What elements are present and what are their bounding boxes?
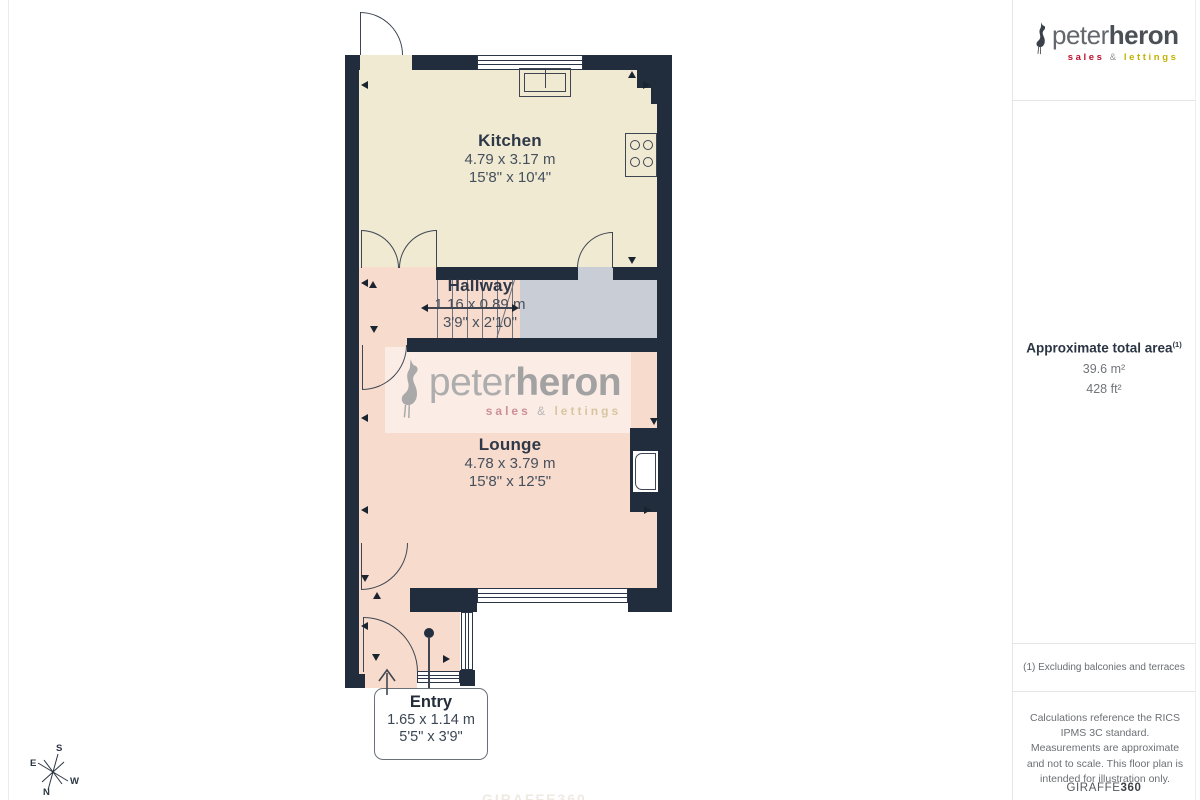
total-area-ft2: 428 ft² xyxy=(1013,382,1195,396)
lounge-watermark: peterheron sales & lettings xyxy=(385,347,631,433)
logo-tagline: sales & lettings xyxy=(1052,52,1179,63)
measure-marker xyxy=(361,81,368,89)
sidebar: peterheron sales & lettings Approximate … xyxy=(1012,0,1196,800)
kitchen-exterior-door xyxy=(360,12,403,55)
measure-marker xyxy=(628,257,636,264)
compass-east: E xyxy=(30,758,36,769)
hob-burner xyxy=(643,157,653,167)
measure-marker xyxy=(372,654,380,661)
callout-line xyxy=(428,637,430,688)
measure-marker xyxy=(361,414,368,422)
hallway-dim-arrowhead-left xyxy=(421,304,428,312)
total-area-title-text: Approximate total area xyxy=(1026,341,1172,356)
hallway-dim-arrowhead-right xyxy=(512,304,519,312)
measure-marker xyxy=(644,506,651,514)
kitchen-door-threshold xyxy=(360,55,412,70)
total-area-block: Approximate total area(1) 39.6 m² 428 ft… xyxy=(1013,340,1195,396)
logo-amp: & xyxy=(1110,52,1119,63)
measure-marker xyxy=(361,575,369,582)
sink-tap xyxy=(545,70,546,88)
heron-logo-icon xyxy=(1033,22,1049,56)
logo-heron: heron xyxy=(1109,20,1179,50)
lounge-label: Lounge 4.78 x 3.79 m 15'8" x 12'5" xyxy=(410,435,610,490)
brand-giraffe: GIRAFFE xyxy=(1066,782,1120,794)
sidebar-divider xyxy=(1013,100,1195,101)
measure-marker xyxy=(361,279,368,287)
footnote-block: (1) Excluding balconies and terraces xyxy=(1013,643,1195,692)
wall-entry-right xyxy=(460,670,475,686)
wall-kitchen-hallway xyxy=(613,267,672,280)
lounge-window-reveal xyxy=(477,603,628,612)
room-name: Kitchen xyxy=(410,131,610,151)
landing-door-threshold xyxy=(578,267,613,280)
giraffe360-brand: GIRAFFE360 xyxy=(1013,782,1195,794)
watermark-peter: peter xyxy=(429,361,515,404)
wall xyxy=(583,55,672,70)
wall-entry-bottom xyxy=(345,674,365,688)
watermark-lettings: lettings xyxy=(554,404,621,418)
hob-burner xyxy=(630,157,640,167)
kitchen-label: Kitchen 4.79 x 3.17 m 15'8" x 10'4" xyxy=(410,131,610,186)
total-area-m2: 39.6 m² xyxy=(1013,362,1195,376)
room-imperial: 15'8" x 10'4" xyxy=(410,169,610,187)
entry-side-window xyxy=(461,612,473,670)
measure-marker xyxy=(369,281,377,288)
total-area-title: Approximate total area(1) xyxy=(1013,340,1195,356)
room-name: Lounge xyxy=(410,435,610,455)
wall-hallway-lounge xyxy=(407,338,672,352)
floor-plan: peterheron sales & lettings xyxy=(0,0,1012,800)
agency-logo: peterheron sales & lettings xyxy=(1033,20,1179,63)
wall-lounge-bottom xyxy=(628,588,672,612)
room-imperial: 15'8" x 12'5" xyxy=(410,473,610,491)
room-metric: 4.79 x 3.17 m xyxy=(410,151,610,169)
entry-bottom-window xyxy=(417,671,460,683)
room-imperial: 5'5" x 3'9" xyxy=(375,729,487,746)
wall xyxy=(412,55,477,70)
watermark-heron: heron xyxy=(515,361,621,404)
logo-peter: peter xyxy=(1052,20,1109,50)
hallway-label: Hallway 1.16 x 0.89 m 3'9" x 2'10" xyxy=(390,276,570,331)
compass-rose: S E W N xyxy=(18,733,90,799)
room-name: Hallway xyxy=(390,276,570,296)
hob xyxy=(625,133,657,177)
fireplace-inset xyxy=(635,453,656,490)
room-imperial: 3'9" x 2'10" xyxy=(390,314,570,332)
measure-marker xyxy=(373,592,381,599)
room-metric: 4.78 x 3.79 m xyxy=(410,455,610,473)
entry-callout: Entry 1.65 x 1.14 m 5'5" x 3'9" xyxy=(374,688,488,760)
floorplan-page: peterheron sales & lettings xyxy=(0,0,1200,800)
measure-marker xyxy=(643,81,650,89)
footnote-text: (1) Excluding balconies and terraces xyxy=(1023,662,1185,673)
faint-bottom-watermark: GIRAFFE360 xyxy=(482,791,587,800)
measure-marker xyxy=(443,655,450,663)
measure-marker xyxy=(650,418,658,425)
measure-marker xyxy=(361,506,368,514)
wall-step xyxy=(651,88,672,104)
brand-360: 360 xyxy=(1121,782,1142,794)
measure-marker xyxy=(628,71,636,78)
logo-lettings: lettings xyxy=(1124,52,1179,63)
hallway-dim-arrow xyxy=(427,307,515,309)
entry-direction-arrow xyxy=(374,666,400,696)
compass-south: S xyxy=(56,743,62,754)
hob-burner xyxy=(630,140,640,150)
disclaimer-text: Calculations reference the RICS IPMS 3C … xyxy=(1025,711,1185,787)
room-metric: 1.65 x 1.14 m xyxy=(375,712,487,729)
wall-left-exterior xyxy=(345,55,359,688)
compass-north: N xyxy=(43,787,50,798)
compass-west: W xyxy=(70,776,79,787)
watermark-sales: sales xyxy=(486,404,531,418)
room-metric: 1.16 x 0.89 m xyxy=(390,296,570,314)
watermark-amp: & xyxy=(537,404,548,418)
measure-marker xyxy=(370,326,378,333)
hob-burner xyxy=(643,140,653,150)
lounge-window xyxy=(477,588,628,603)
total-area-footnote-marker: (1) xyxy=(1173,340,1182,349)
measure-marker xyxy=(361,622,368,630)
logo-sales: sales xyxy=(1068,52,1105,63)
wall-lounge-bottom xyxy=(410,588,477,612)
